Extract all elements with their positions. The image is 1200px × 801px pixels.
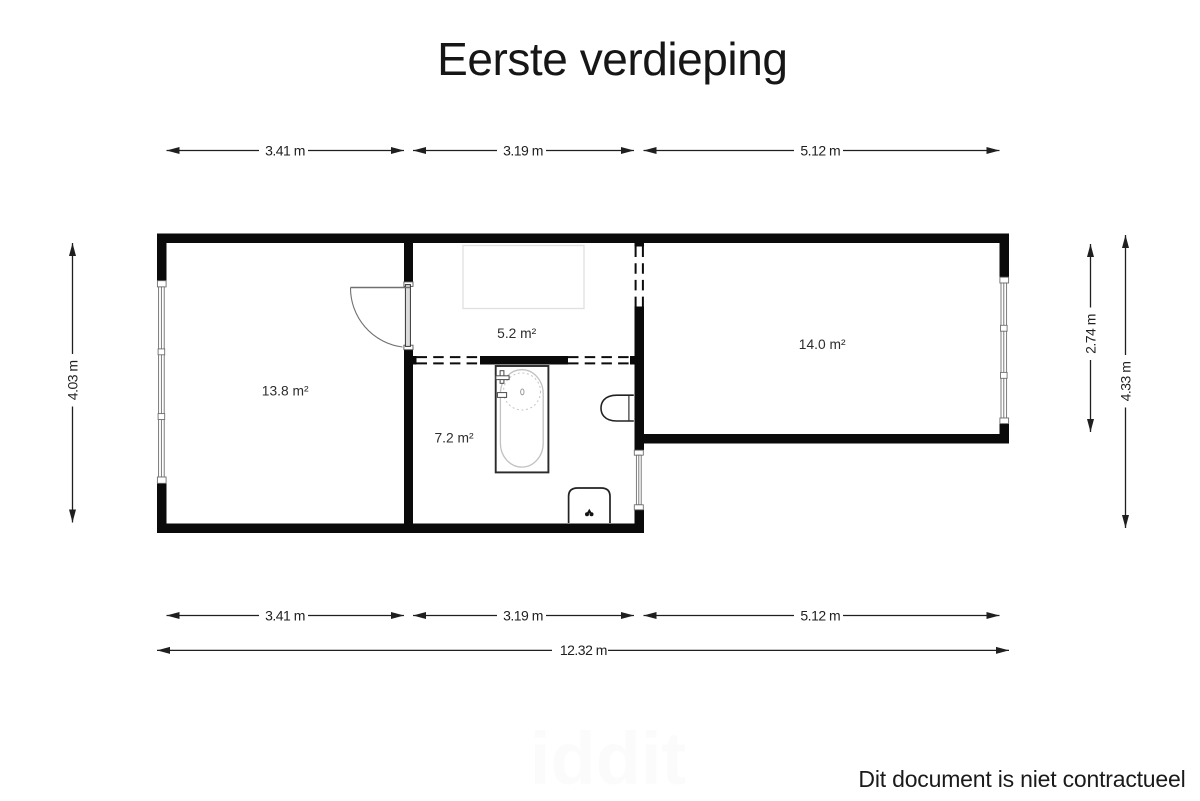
svg-text:12.32 m: 12.32 m [560, 642, 607, 658]
svg-text:5.12 m: 5.12 m [800, 607, 840, 623]
svg-text:4.03 m: 4.03 m [64, 360, 80, 400]
svg-text:iddit: iddit [530, 717, 686, 800]
svg-text:Eerste verdieping: Eerste verdieping [437, 33, 787, 85]
svg-text:3.41 m: 3.41 m [265, 607, 305, 623]
svg-text:3.19 m: 3.19 m [503, 142, 543, 158]
svg-text:7.2 m²: 7.2 m² [434, 431, 474, 446]
svg-text:5.12 m: 5.12 m [800, 142, 840, 158]
svg-text:3.41 m: 3.41 m [265, 142, 305, 158]
svg-text:13.8 m²: 13.8 m² [262, 384, 309, 399]
svg-text:5.2 m²: 5.2 m² [497, 326, 537, 341]
svg-text:3.19 m: 3.19 m [503, 607, 543, 623]
svg-text:14.0 m²: 14.0 m² [799, 337, 846, 352]
svg-text:4.33 m: 4.33 m [1117, 362, 1133, 402]
svg-text:Dit document is niet contractu: Dit document is niet contractueel [858, 766, 1185, 792]
svg-text:2.74 m: 2.74 m [1082, 314, 1098, 354]
